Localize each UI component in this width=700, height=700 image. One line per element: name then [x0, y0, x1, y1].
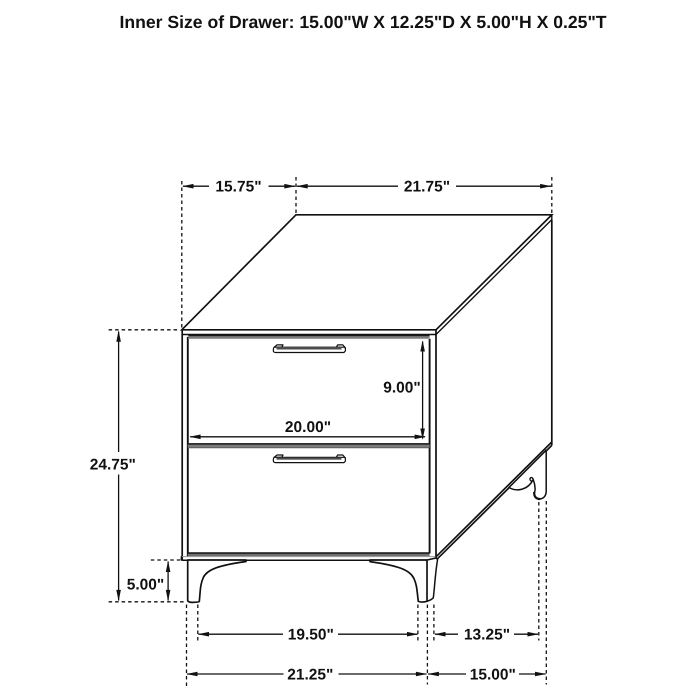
- svg-text:20.00": 20.00": [285, 419, 331, 436]
- svg-text:21.75": 21.75": [404, 179, 450, 196]
- svg-text:5.00": 5.00": [127, 576, 165, 593]
- svg-text:21.25": 21.25": [287, 667, 333, 684]
- svg-text:24.75": 24.75": [90, 457, 136, 474]
- svg-text:19.50": 19.50": [288, 627, 334, 644]
- svg-text:15.75": 15.75": [215, 179, 261, 196]
- svg-text:15.00": 15.00": [470, 667, 516, 684]
- svg-text:13.25": 13.25": [464, 627, 510, 644]
- svg-text:9.00": 9.00": [383, 380, 421, 397]
- svg-text:Inner Size of Drawer: 15.00"W: Inner Size of Drawer: 15.00"W X 12.25"D …: [119, 12, 606, 32]
